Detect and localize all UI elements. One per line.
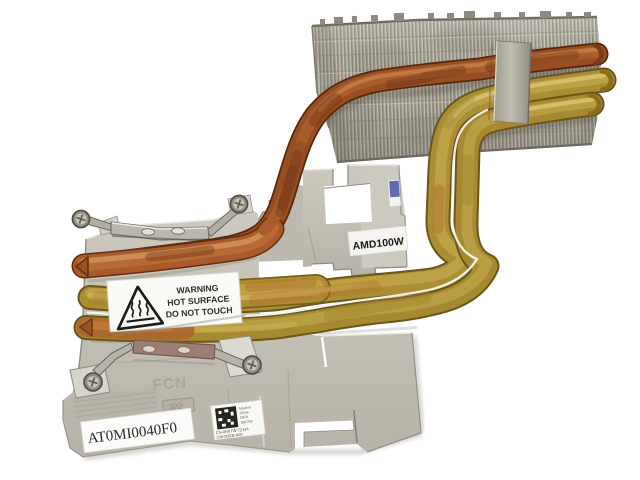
svg-text:FCN: FCN	[151, 374, 187, 393]
